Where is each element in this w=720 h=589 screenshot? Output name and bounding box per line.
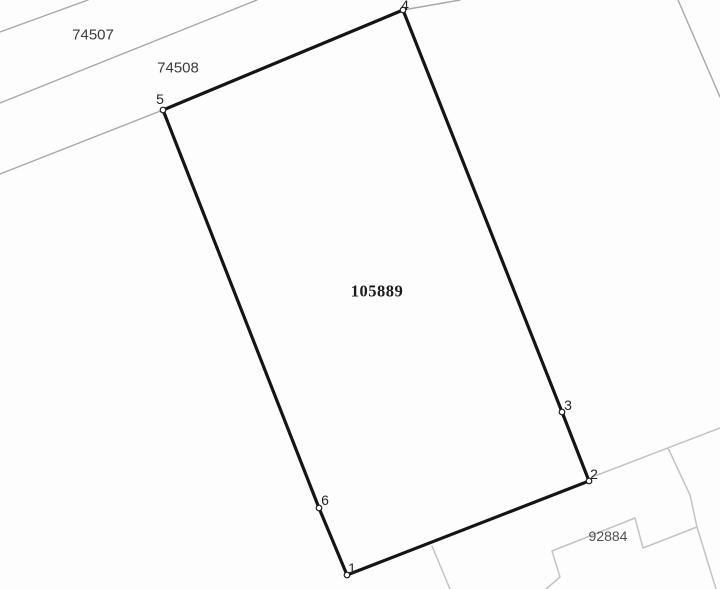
- vertex-label-1: 1: [348, 560, 356, 576]
- vertex-label-3: 3: [564, 397, 572, 413]
- parcel-label-105889: 105889: [351, 282, 404, 301]
- parcel-label-74507: 74507: [72, 27, 114, 44]
- vertex-label-6: 6: [321, 492, 329, 508]
- vertex-label-2: 2: [590, 466, 598, 482]
- vertex-marker-5: [160, 107, 166, 113]
- parcel-label-74508: 74508: [157, 60, 199, 77]
- vertex-label-5: 5: [156, 91, 164, 107]
- parcel-label-92884: 92884: [589, 528, 628, 544]
- cadastral-map: 123456745077450892884105889: [0, 0, 720, 589]
- cadastral-map-canvas: 123456745077450892884105889: [0, 0, 720, 589]
- vertex-label-4: 4: [401, 0, 409, 13]
